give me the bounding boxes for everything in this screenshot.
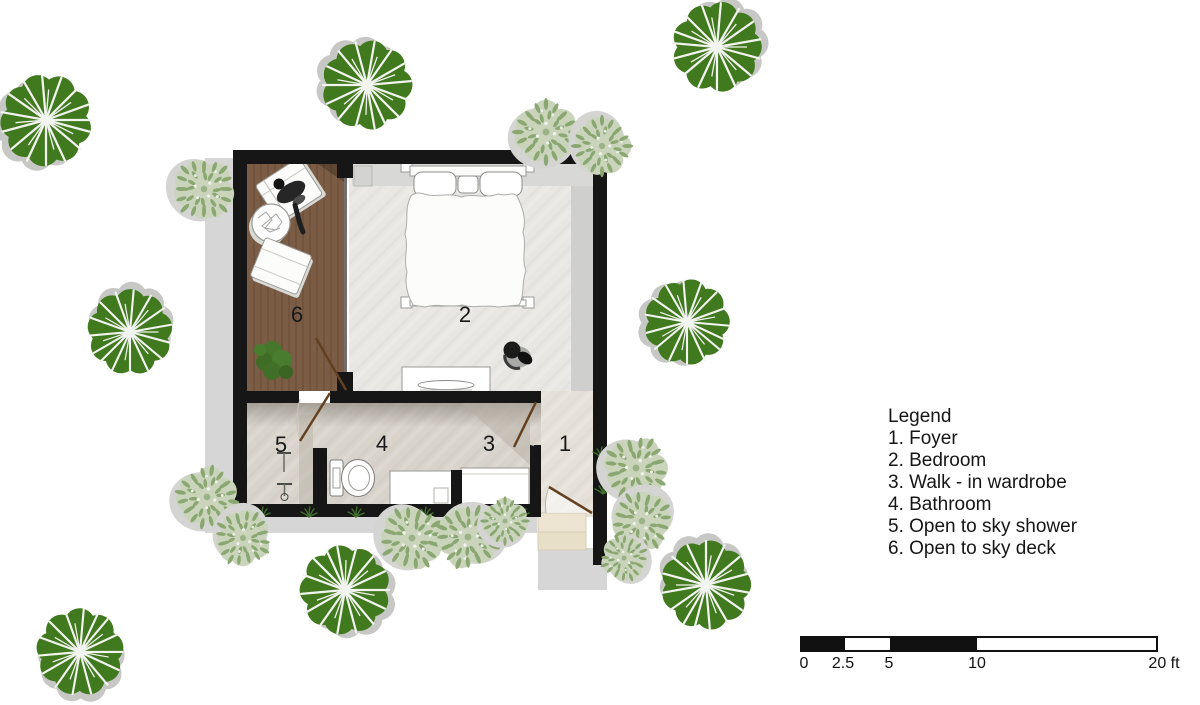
scale-segment [890, 638, 977, 650]
bed [401, 161, 534, 308]
duvet [405, 193, 526, 307]
pillow [480, 172, 522, 196]
legend-item: 3. Walk - in wardrobe [888, 472, 1077, 494]
site-plan-page: 6 2 5 4 3 1 Legend 1. Foyer 2. Bedroom 3… [0, 0, 1200, 705]
legend-item: 2. Bedroom [888, 450, 1077, 472]
room-number-1: 1 [559, 431, 571, 456]
scale-segment [802, 638, 845, 650]
bedroom-side-ledge [571, 164, 593, 391]
floor-plan-canvas: 6 2 5 4 3 1 [0, 0, 1200, 705]
scale-bar: 0 2.5 5 10 20 ft [800, 636, 1158, 676]
scale-segment [977, 638, 1156, 650]
pillow-small [458, 176, 478, 193]
legend-item: 4. Bathroom [888, 494, 1077, 516]
room-number-4: 4 [376, 431, 388, 456]
legend-title: Legend [888, 406, 1077, 428]
tree-icon [621, 260, 747, 387]
pillow [414, 172, 456, 196]
room-number-3: 3 [483, 431, 495, 456]
scale-tick-label: 10 [968, 655, 986, 673]
room-number-5: 5 [275, 432, 287, 457]
scale-segment [845, 638, 890, 650]
legend-list: 1. Foyer 2. Bedroom 3. Walk - in wardrob… [888, 428, 1077, 560]
scale-tick-label: 0 [800, 655, 809, 673]
entry-steps [538, 513, 586, 550]
side-table-icon [354, 166, 372, 186]
tree-icon [659, 0, 779, 106]
toilet-icon [330, 460, 375, 497]
legend-item: 1. Foyer [888, 428, 1077, 450]
scale-tick-label: 20 ft [1148, 655, 1179, 673]
glass-partition [344, 164, 347, 391]
tree-icon [69, 267, 191, 390]
legend-item: 6. Open to sky deck [888, 538, 1077, 560]
tree-icon [308, 30, 419, 138]
vanity-counter [390, 471, 452, 507]
wardrobe-closet [461, 468, 529, 507]
legend-item: 5. Open to sky shower [888, 516, 1077, 538]
tree-icon [0, 63, 102, 182]
room-number-2: 2 [459, 302, 471, 327]
tree-icon [17, 591, 146, 705]
scale-tick-label: 5 [885, 655, 894, 673]
scale-tick-label: 2.5 [832, 655, 854, 673]
scale-bar-graphic [800, 636, 1158, 652]
room-number-6: 6 [291, 302, 303, 327]
legend: Legend 1. Foyer 2. Bedroom 3. Walk - in … [888, 406, 1077, 560]
